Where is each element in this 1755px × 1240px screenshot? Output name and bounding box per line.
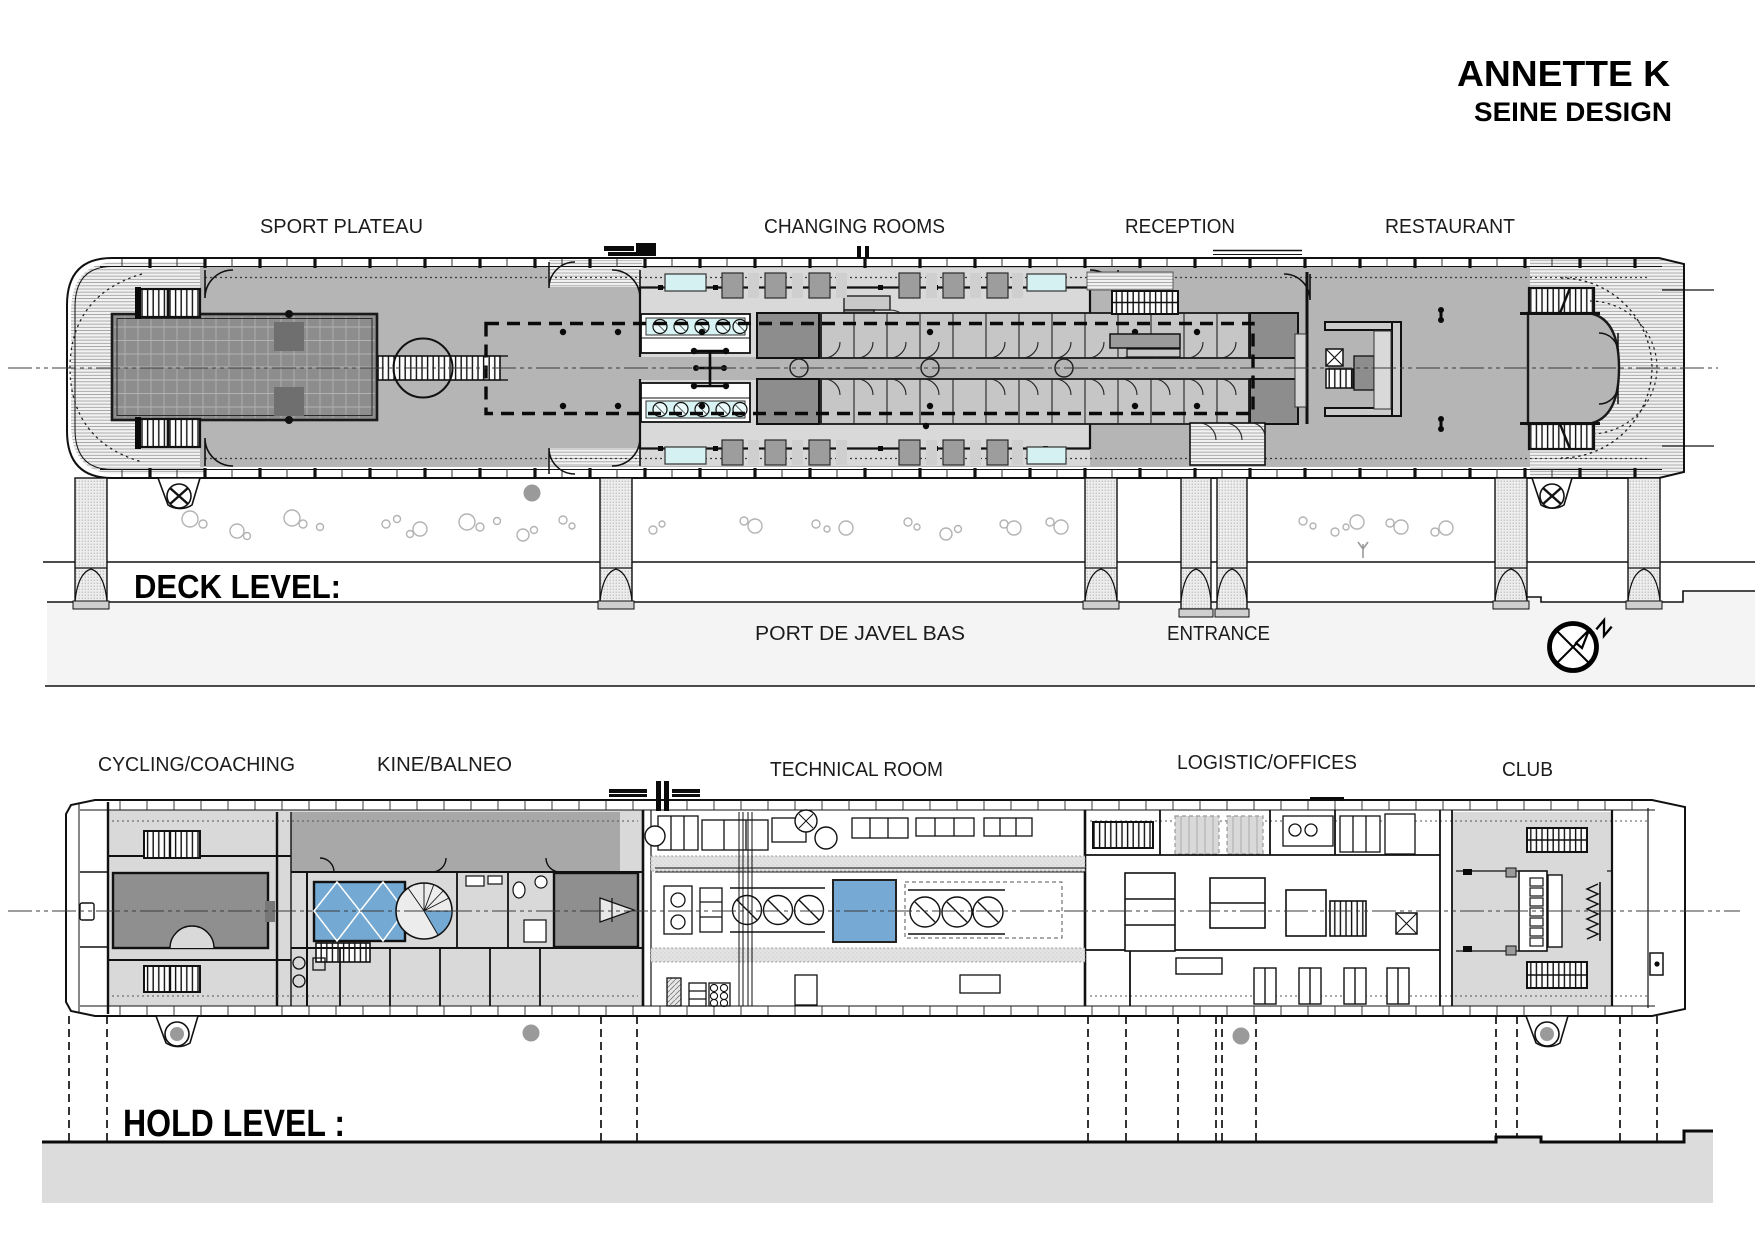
svg-text:SEINE DESIGN: SEINE DESIGN [1474, 97, 1672, 127]
svg-text:DECK LEVEL:: DECK LEVEL: [134, 568, 341, 605]
svg-text:HOLD LEVEL :: HOLD LEVEL : [123, 1103, 345, 1145]
svg-text:ANNETTE K: ANNETTE K [1457, 53, 1670, 94]
svg-text:PORT DE JAVEL BAS: PORT DE JAVEL BAS [755, 623, 965, 645]
svg-text:ENTRANCE: ENTRANCE [1167, 623, 1270, 645]
svg-text:KINE/BALNEO: KINE/BALNEO [377, 754, 512, 776]
svg-text:LOGISTIC/OFFICES: LOGISTIC/OFFICES [1177, 752, 1357, 774]
svg-text:CHANGING ROOMS: CHANGING ROOMS [764, 216, 945, 238]
svg-text:CLUB: CLUB [1502, 759, 1553, 781]
svg-text:TECHNICAL ROOM: TECHNICAL ROOM [770, 759, 943, 781]
svg-text:RECEPTION: RECEPTION [1125, 216, 1235, 238]
svg-text:SPORT PLATEAU: SPORT PLATEAU [260, 216, 423, 238]
svg-text:CYCLING/COACHING: CYCLING/COACHING [98, 754, 295, 776]
svg-text:RESTAURANT: RESTAURANT [1385, 216, 1515, 238]
